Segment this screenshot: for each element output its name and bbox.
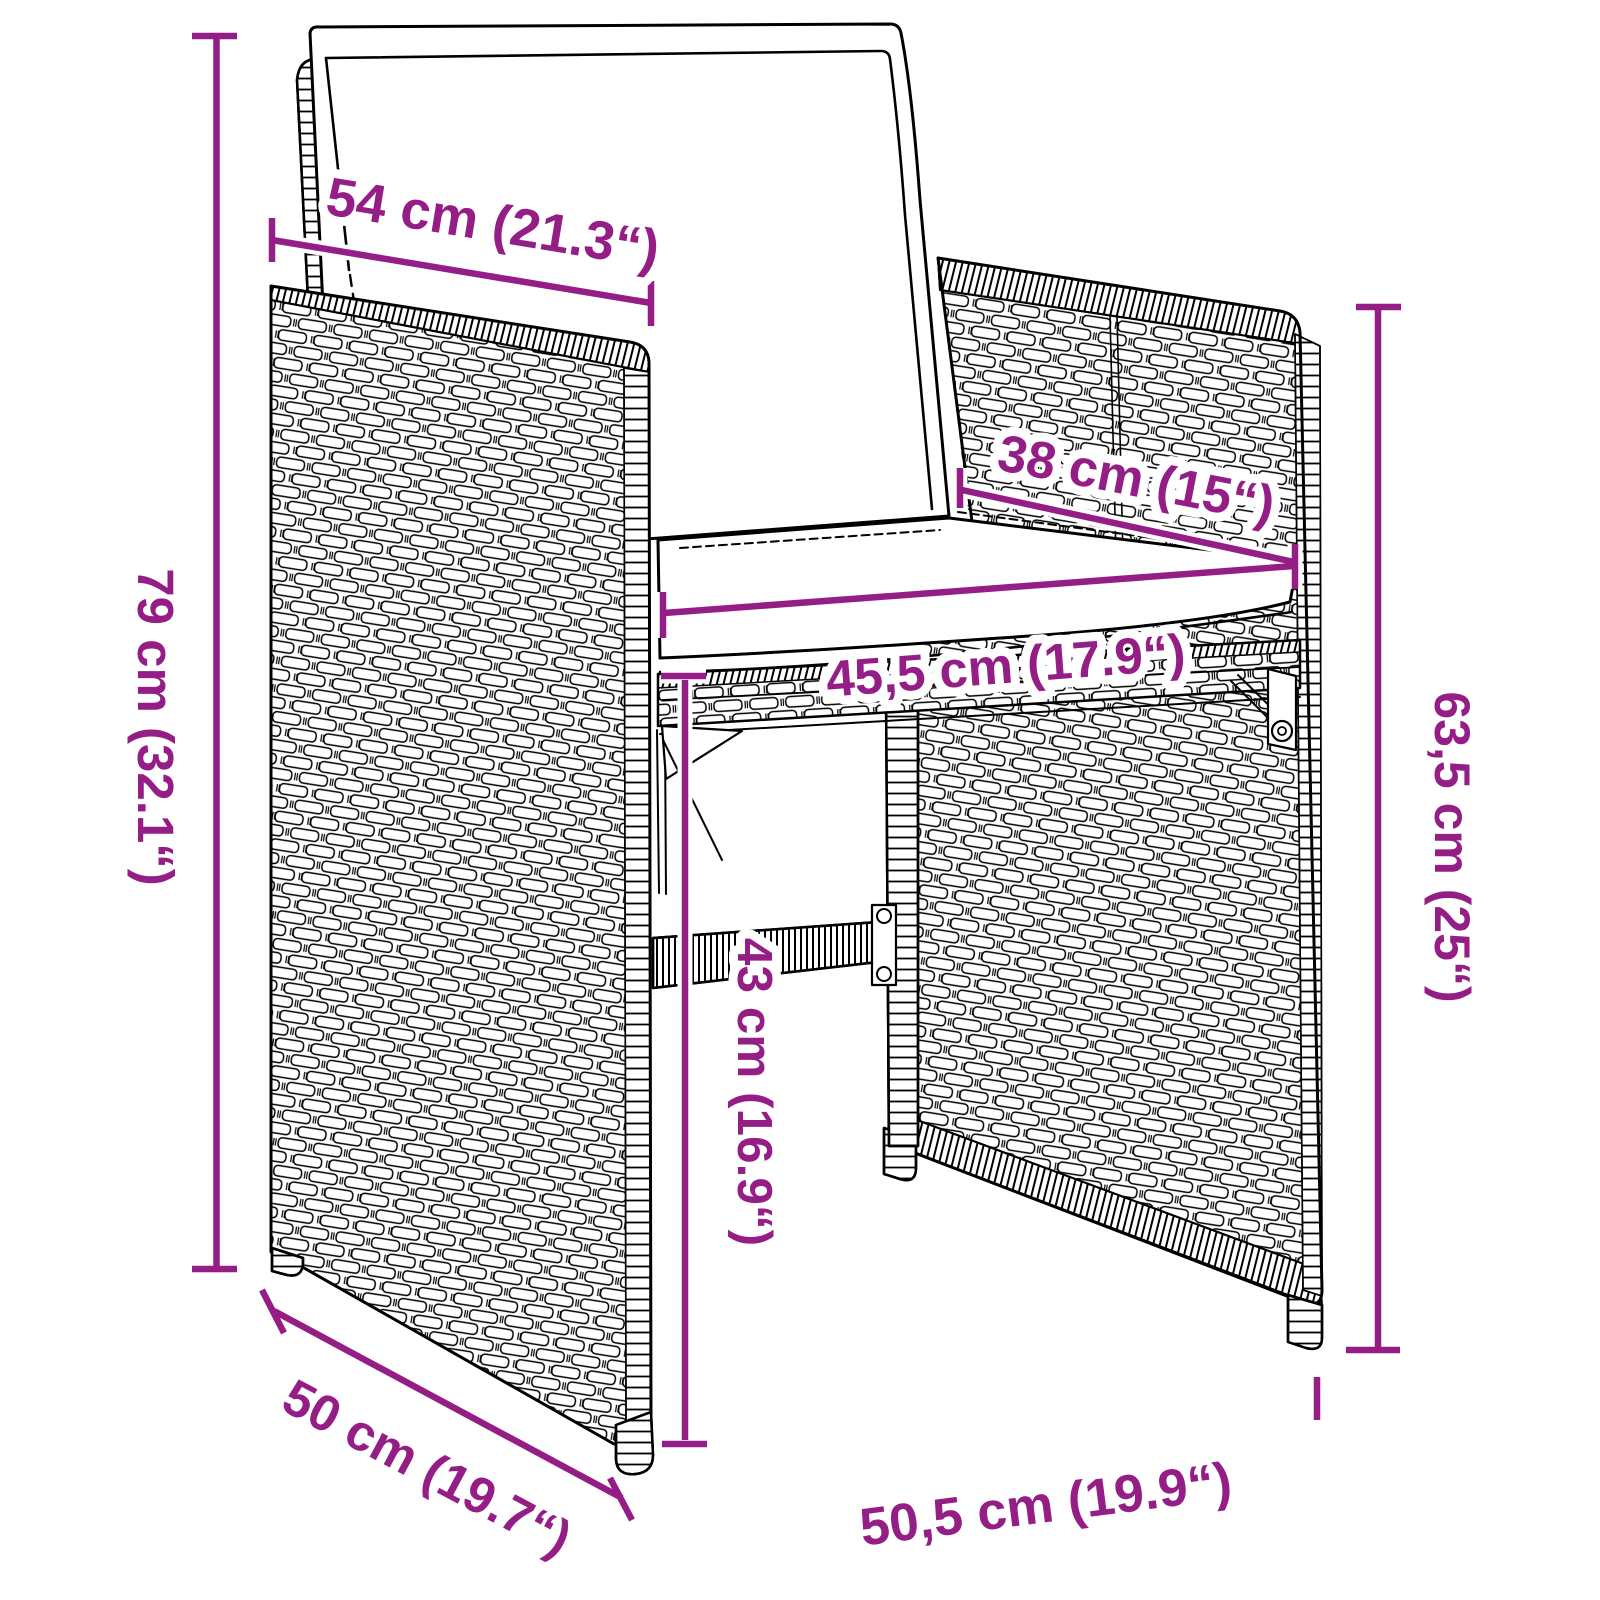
svg-text:79 cm (32.1“): 79 cm (32.1“) [127,568,184,886]
svg-text:43 cm (16.9“): 43 cm (16.9“) [727,938,782,1246]
svg-text:63,5 cm (25“): 63,5 cm (25“) [1424,691,1480,1002]
